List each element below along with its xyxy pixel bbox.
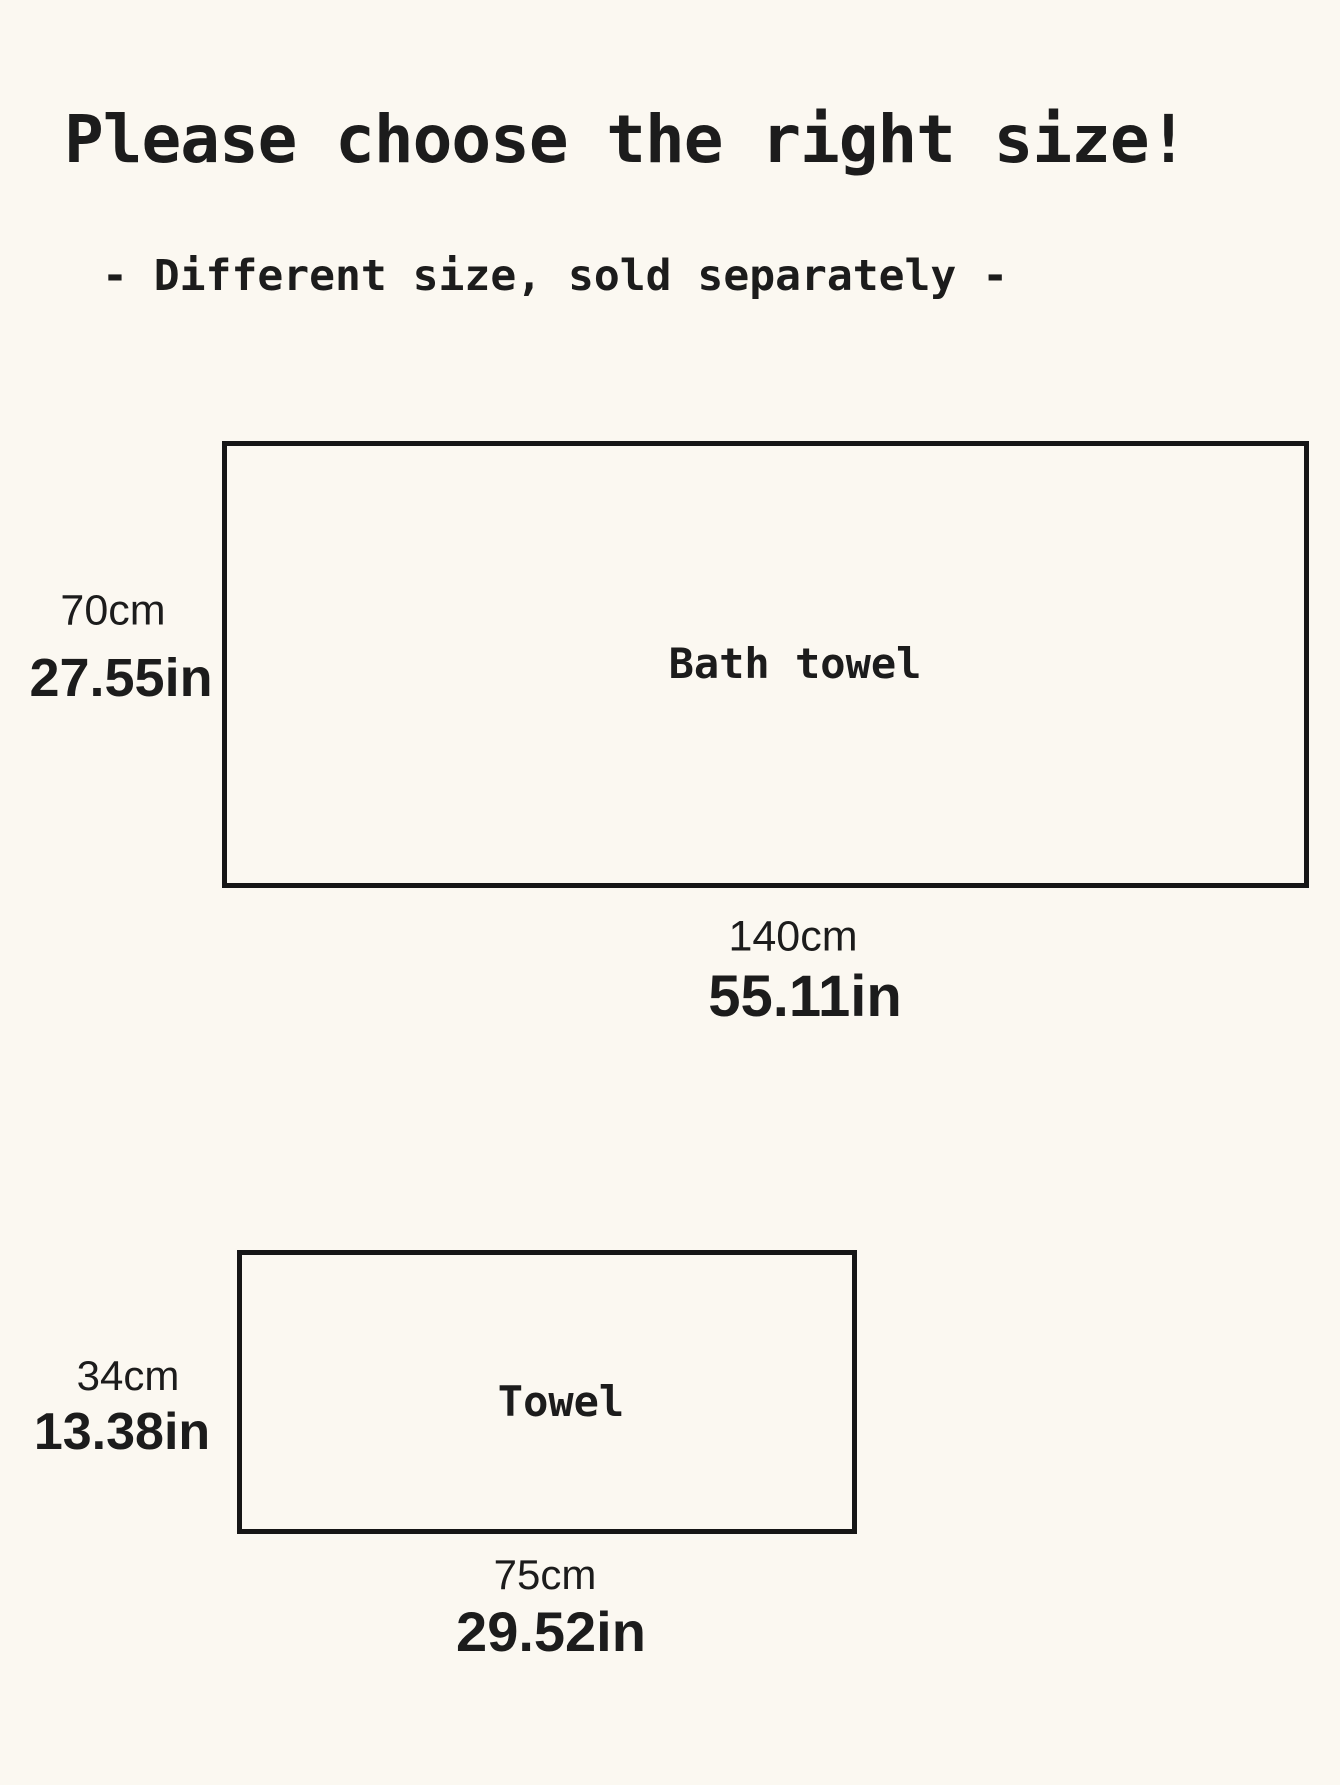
towel-name-label: Towel: [498, 1381, 624, 1423]
bath-towel-name-label: Bath towel: [669, 643, 922, 685]
bath-towel-height-cm-label: 70cm: [60, 590, 165, 633]
page-title: Please choose the right size!: [64, 100, 1187, 179]
bath-towel-width-in-label: 55.11in: [708, 968, 901, 1026]
bath-towel-width-cm-label: 140cm: [728, 916, 857, 959]
towel-width-cm-label: 75cm: [494, 1554, 597, 1596]
bath-towel-height-in-label: 27.55in: [29, 651, 212, 705]
towel-height-cm-label: 34cm: [77, 1355, 180, 1397]
page-subtitle: - Different size, sold separately -: [102, 251, 1008, 303]
towel-width-in-label: 29.52in: [456, 1604, 646, 1660]
towel-height-in-label: 13.38in: [34, 1406, 210, 1458]
